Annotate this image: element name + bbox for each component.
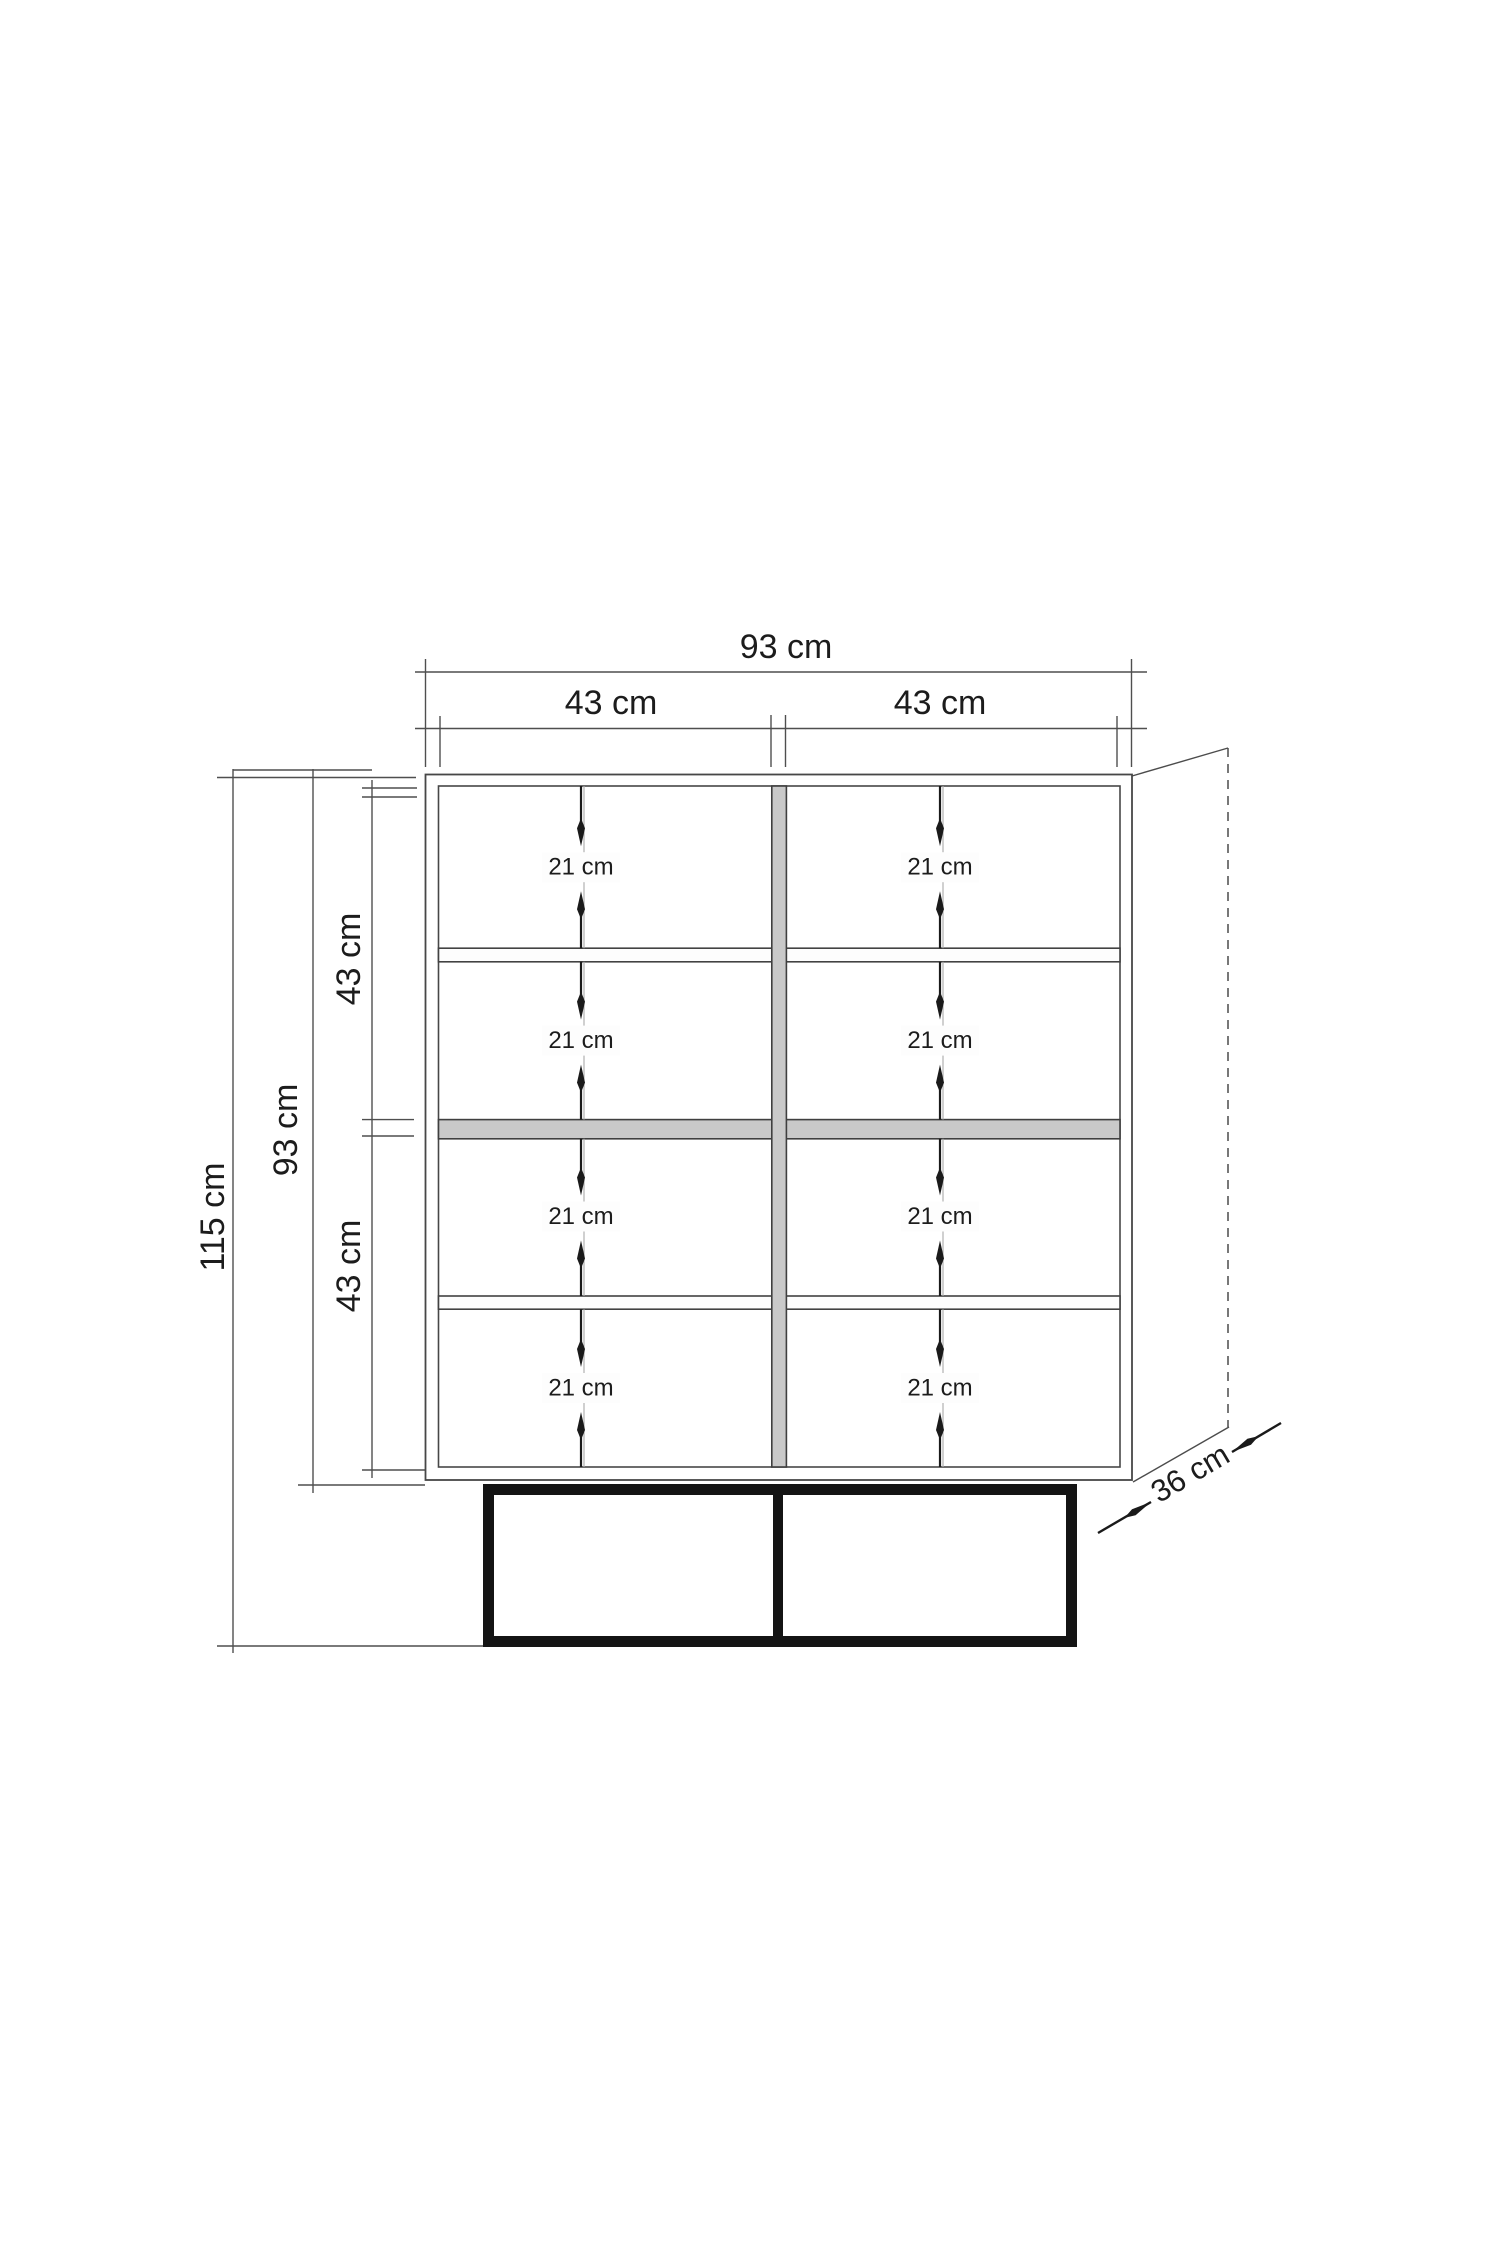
svg-text:21 cm: 21 cm: [907, 854, 972, 881]
svg-text:21 cm: 21 cm: [548, 1375, 613, 1402]
svg-text:21 cm: 21 cm: [907, 1375, 972, 1402]
svg-text:43 cm: 43 cm: [894, 684, 987, 722]
svg-text:93 cm: 93 cm: [267, 1084, 305, 1177]
svg-text:93 cm: 93 cm: [740, 628, 833, 666]
svg-text:115 cm: 115 cm: [194, 1163, 232, 1272]
svg-text:43 cm: 43 cm: [330, 1220, 368, 1313]
svg-text:21 cm: 21 cm: [907, 1027, 972, 1054]
svg-text:21 cm: 21 cm: [907, 1203, 972, 1230]
svg-text:43 cm: 43 cm: [565, 684, 658, 722]
svg-text:21 cm: 21 cm: [548, 854, 613, 881]
svg-text:21 cm: 21 cm: [548, 1203, 613, 1230]
svg-text:43 cm: 43 cm: [330, 913, 368, 1006]
svg-text:21 cm: 21 cm: [548, 1027, 613, 1054]
